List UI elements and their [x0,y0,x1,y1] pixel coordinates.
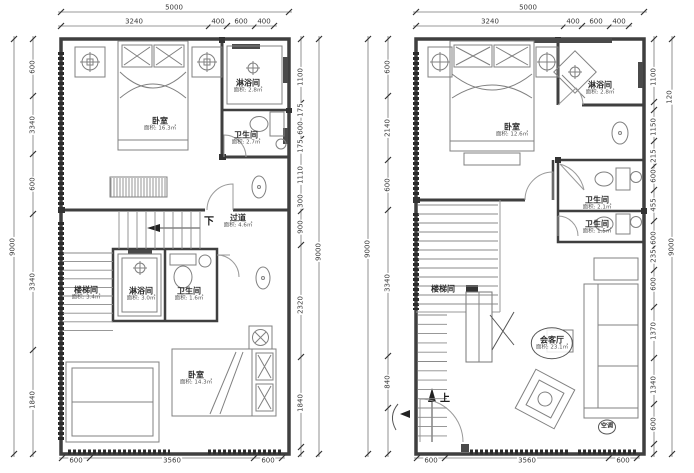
floorplan-linework [0,0,694,473]
floorplan-drawing: 5000324040060040060035606009000600334060… [0,0,694,473]
